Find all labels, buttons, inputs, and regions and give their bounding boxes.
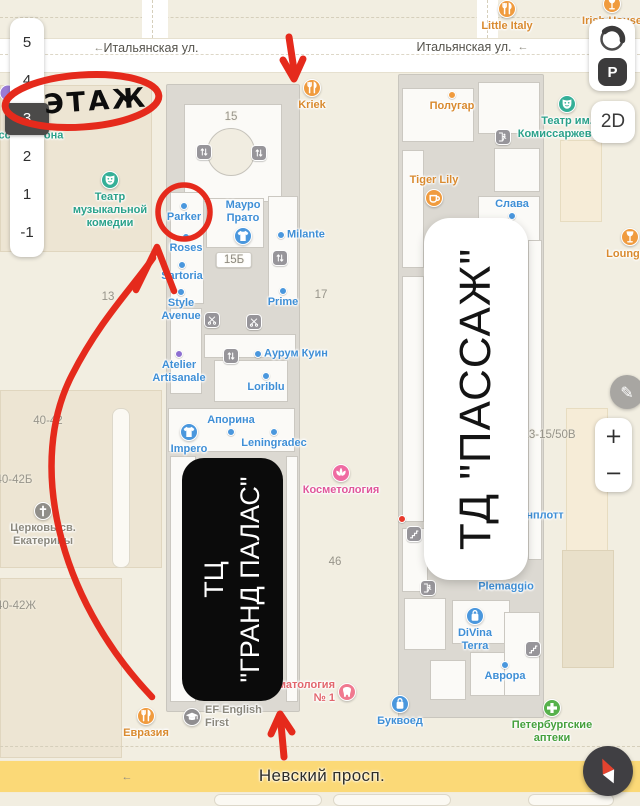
zoom-in-button[interactable]: +	[605, 426, 623, 447]
compass-needle-icon	[591, 754, 625, 788]
zoom-out-button[interactable]: −	[605, 463, 623, 484]
floor-option--1[interactable]: -1	[10, 216, 44, 248]
edit-button[interactable]: ✎	[610, 375, 640, 409]
ring-crescent-icon	[597, 24, 627, 54]
map-canvas[interactable]: Итальянская ул. ← Итальянская ул. ← Невс…	[0, 0, 640, 806]
floor-option-4[interactable]: 4	[10, 65, 44, 97]
compass-button[interactable]	[583, 746, 633, 796]
floor-option-3[interactable]: 3	[5, 103, 49, 135]
top-right-panel: P	[589, 19, 635, 91]
2d-mode-label: 2D	[601, 111, 625, 133]
pencil-icon: ✎	[620, 383, 633, 402]
floor-option-1[interactable]: 1	[10, 178, 44, 210]
floor-selector: 54321-1	[10, 18, 44, 257]
layers-button[interactable]	[597, 24, 627, 54]
floor-option-2[interactable]: 2	[10, 140, 44, 172]
2d-mode-button[interactable]: 2D	[591, 101, 635, 143]
map-controls: 54321-1 P 2D ✎ + −	[0, 0, 640, 806]
parking-icon: P	[607, 64, 617, 81]
floor-option-5[interactable]: 5	[10, 27, 44, 59]
parking-layer-button[interactable]: P	[598, 58, 627, 86]
zoom-controls: + −	[595, 418, 632, 492]
